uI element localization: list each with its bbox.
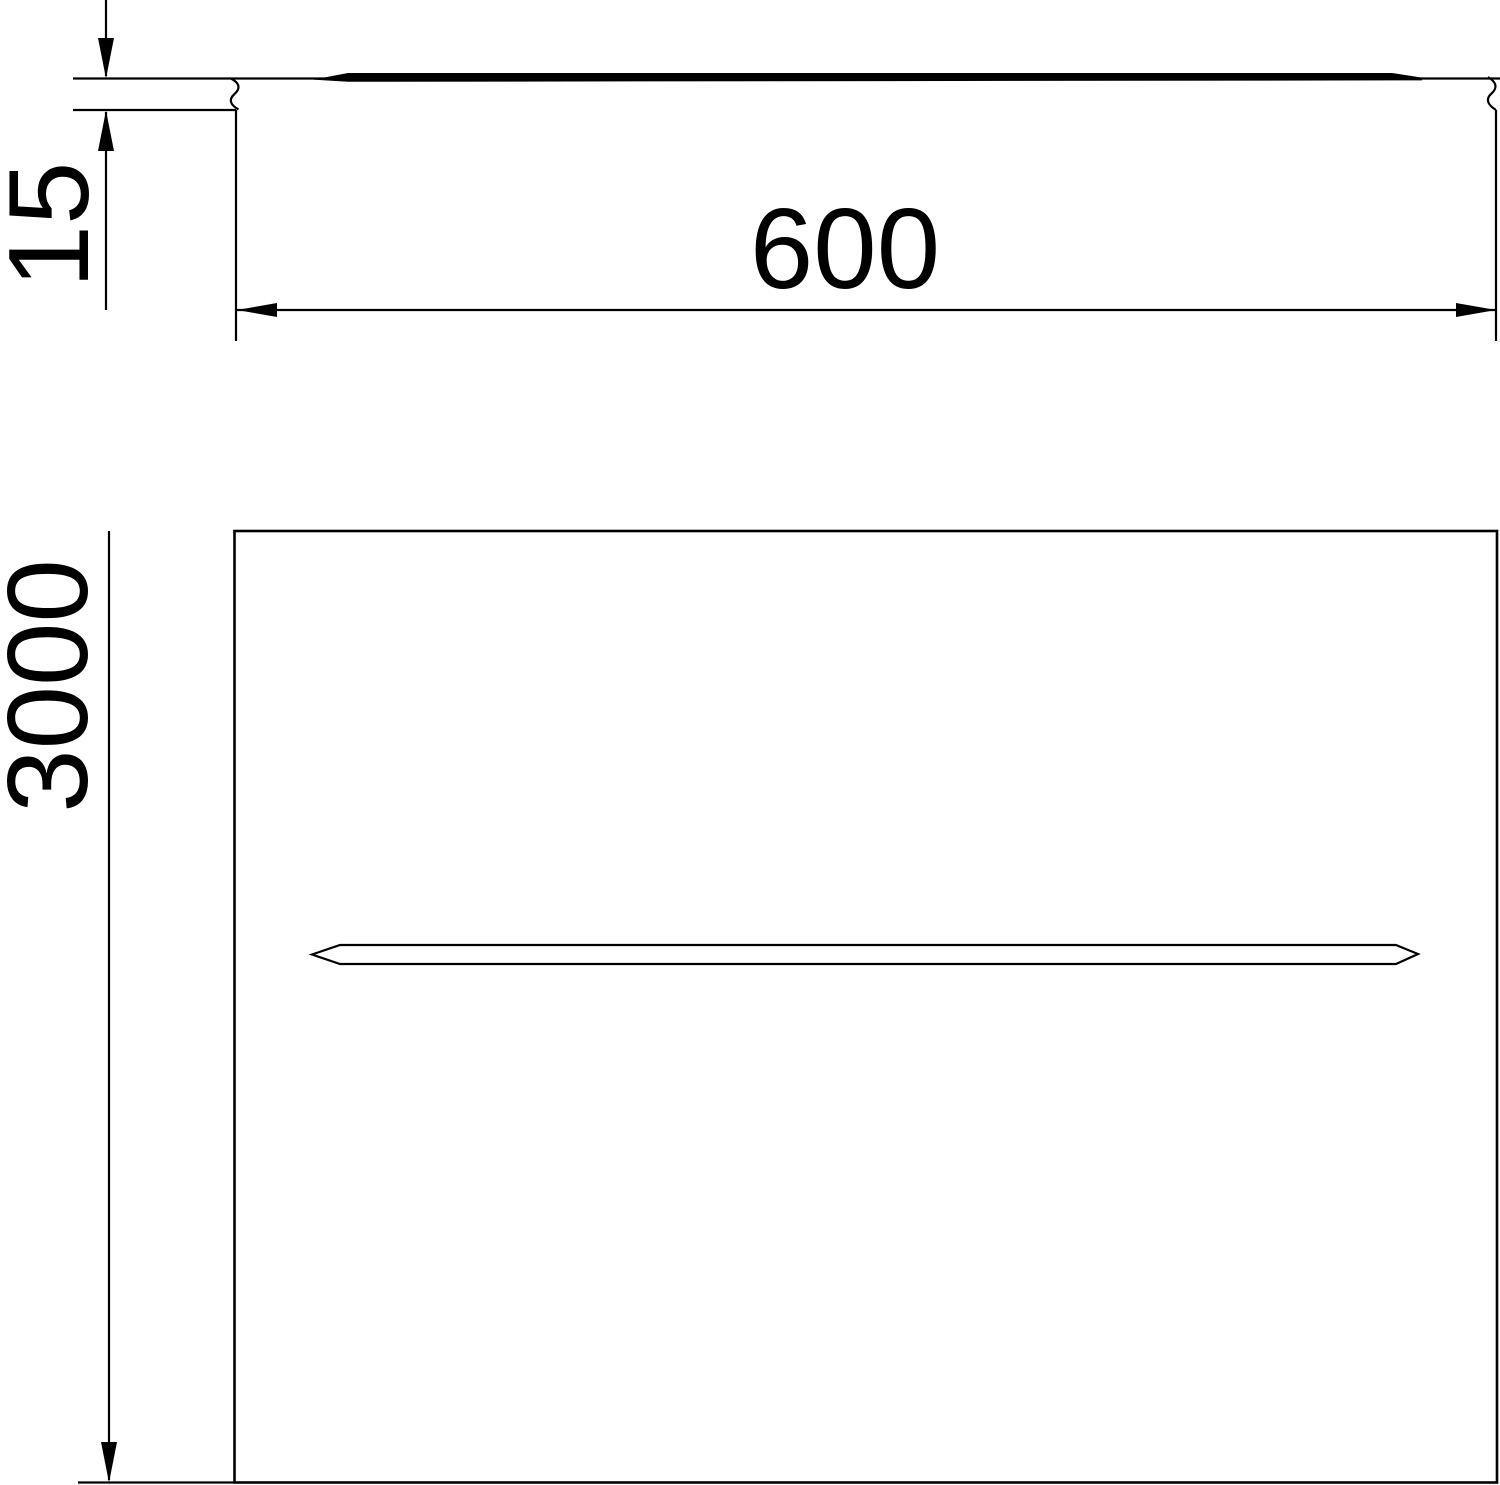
profile-sheet-body (313, 73, 1422, 82)
dimension-label-profile-height: 15 (0, 162, 113, 289)
cover-plate-outline (235, 531, 1498, 1483)
dimension-length: 3000 (0, 531, 235, 1483)
break-line-right (1488, 77, 1496, 110)
longitudinal-rib (312, 945, 1418, 964)
arrow-right-icon (1456, 303, 1496, 317)
arrow-up-icon (98, 111, 114, 152)
arrow-down-icon (98, 38, 114, 79)
technical-drawing-canvas: 600 15 3000 (0, 0, 1500, 1485)
dimension-label-length: 3000 (0, 559, 112, 813)
drawing-svg: 600 15 3000 (0, 0, 1500, 1485)
arrow-left-icon (237, 303, 277, 317)
dimension-width: 600 (237, 186, 1496, 317)
plan-view (235, 531, 1498, 1483)
dimension-label-width: 600 (750, 186, 940, 313)
break-line-left (231, 79, 239, 110)
dimension-profile-height: 15 (0, 0, 114, 310)
arrow-down-icon (101, 1442, 117, 1483)
